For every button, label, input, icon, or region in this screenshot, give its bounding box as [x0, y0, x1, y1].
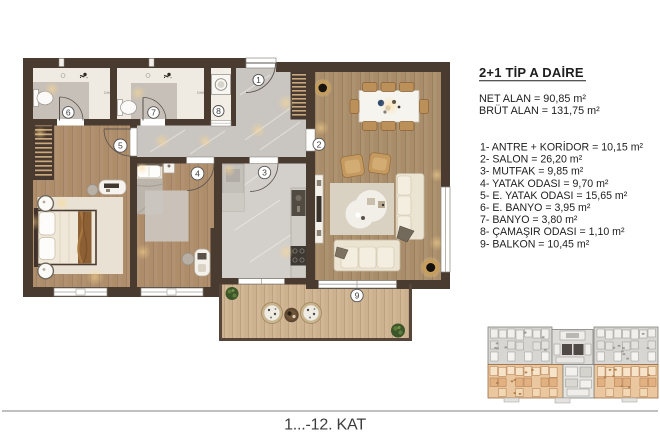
svg-text:4: 4: [195, 169, 200, 179]
svg-text:7: 7: [151, 108, 156, 118]
svg-text:7- BANYO = 3,80 m²: 7- BANYO = 3,80 m²: [480, 214, 578, 226]
svg-text:6- E. BANYO = 3,95 m²: 6- E. BANYO = 3,95 m²: [480, 202, 591, 214]
svg-text:3- MUTFAK = 9,85 m²: 3- MUTFAK = 9,85 m²: [480, 166, 584, 178]
svg-text:9- BALKON = 10,45 m²: 9- BALKON = 10,45 m²: [480, 238, 590, 250]
svg-text:2: 2: [317, 139, 322, 149]
svg-text:1- ANTRE + KORİDOR = 10,15 m²: 1- ANTRE + KORİDOR = 10,15 m²: [480, 141, 644, 154]
svg-text:DH6: DH6: [197, 91, 204, 95]
svg-text:5- E. YATAK ODASI = 15,65 m²: 5- E. YATAK ODASI = 15,65 m²: [480, 190, 628, 202]
svg-text:8- ÇAMAŞIR ODASI = 1,10 m²: 8- ÇAMAŞIR ODASI = 1,10 m²: [480, 226, 625, 238]
svg-text:9: 9: [355, 291, 360, 301]
svg-text:1: 1: [256, 75, 261, 85]
svg-text:1...-12. KAT: 1...-12. KAT: [284, 417, 366, 434]
svg-text:6: 6: [66, 108, 71, 118]
svg-text:2+1 TİP A DAİRE: 2+1 TİP A DAİRE: [479, 65, 584, 80]
svg-text:5: 5: [118, 141, 123, 151]
svg-text:2- SALON = 26,20 m²: 2- SALON = 26,20 m²: [480, 154, 583, 166]
svg-text:8: 8: [216, 106, 221, 116]
svg-text:BRÜT ALAN = 131,75 m²: BRÜT ALAN = 131,75 m²: [479, 105, 600, 117]
svg-text:NET ALAN = 90,85 m²: NET ALAN = 90,85 m²: [479, 93, 586, 105]
svg-text:4- YATAK ODASI = 9,70 m²: 4- YATAK ODASI = 9,70 m²: [480, 178, 609, 190]
svg-text:3: 3: [262, 168, 267, 178]
